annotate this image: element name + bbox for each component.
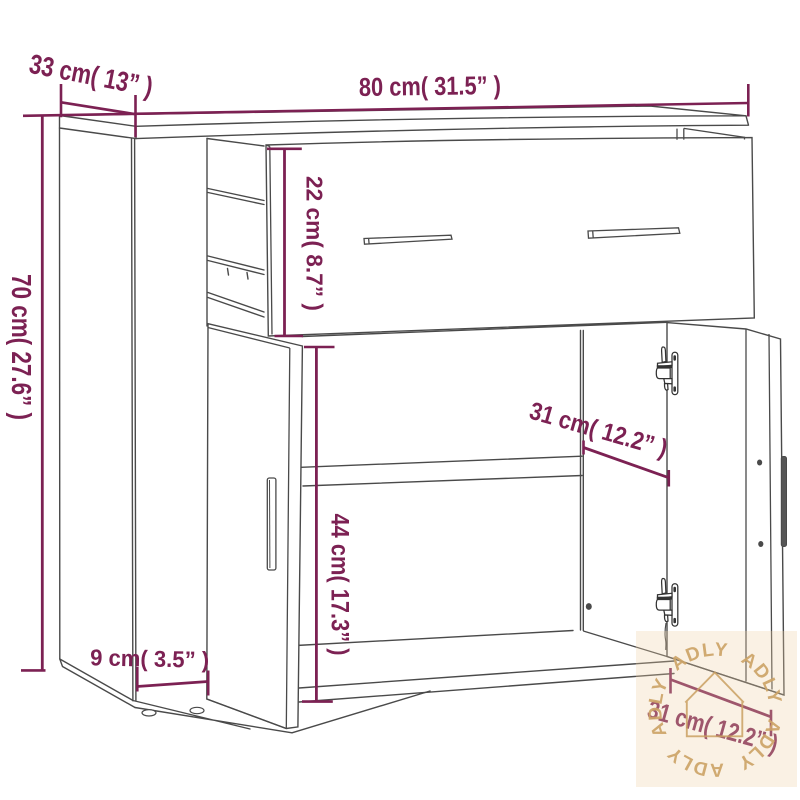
svg-text:44 cm( 17.3” ): 44 cm( 17.3” )	[326, 514, 354, 656]
svg-text:22 cm( 8.7” ): 22 cm( 8.7” )	[302, 176, 328, 311]
svg-text:9 cm( 3.5” ): 9 cm( 3.5” )	[90, 644, 210, 672]
svg-text:70 cm( 27.6” ): 70 cm( 27.6” )	[6, 274, 37, 420]
svg-text:80 cm( 31.5” ): 80 cm( 31.5” )	[359, 70, 501, 102]
